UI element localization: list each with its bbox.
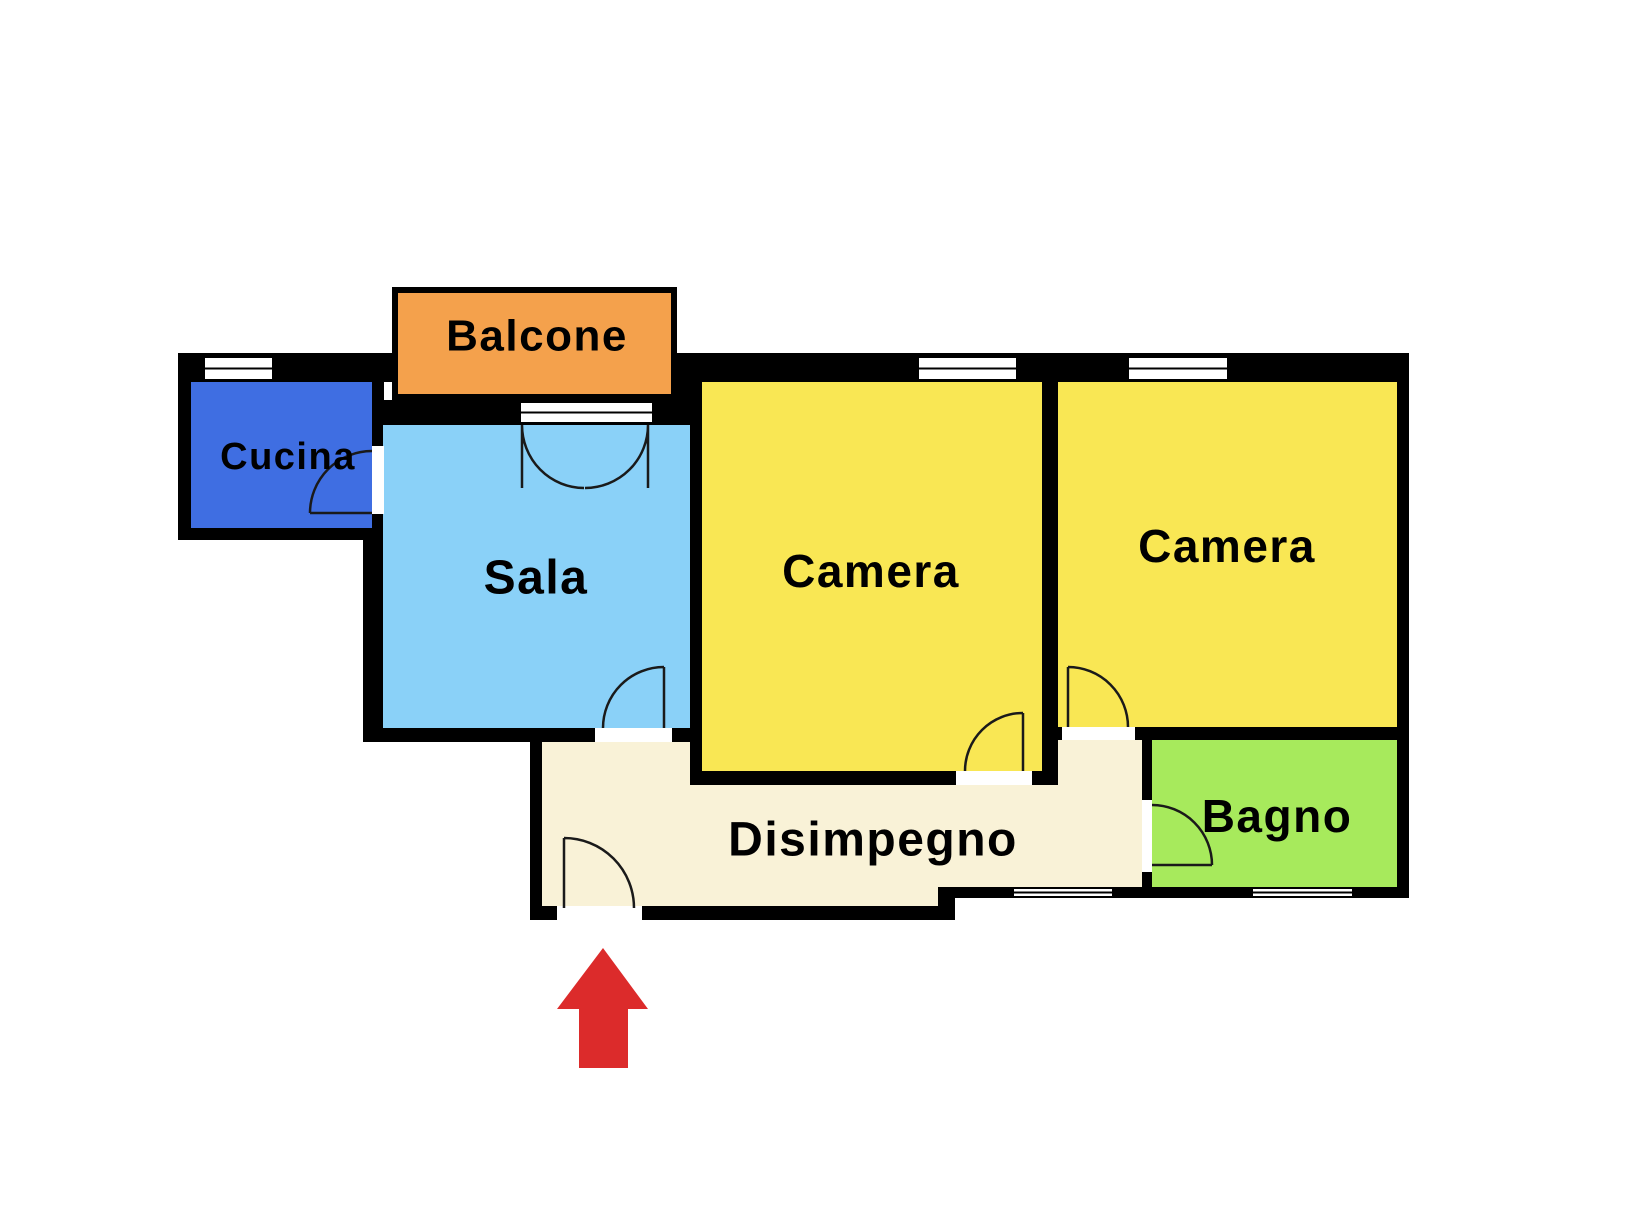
balcone-label: Balcone — [446, 312, 628, 361]
opening-entrance — [557, 906, 642, 920]
camera1-label: Camera — [782, 545, 960, 597]
window-camera1 — [918, 357, 1017, 380]
opening-cucina — [372, 446, 384, 514]
wall-cucina-left — [178, 353, 191, 540]
opening-sala — [595, 728, 672, 742]
opening-camera2 — [1062, 727, 1135, 740]
opening-bagno — [1142, 800, 1152, 872]
wall-camera1-camera2 — [1042, 353, 1058, 785]
wall-right — [1397, 353, 1409, 898]
cucina-label: Cucina — [220, 436, 356, 478]
wall-cucina-bottom — [178, 528, 384, 540]
disimpegno-label: Disimpegno — [728, 814, 1018, 867]
window-disimpegno-south — [1013, 888, 1113, 897]
window-cucina — [204, 357, 273, 380]
sala-label: Sala — [484, 552, 589, 605]
floor-plan: Balcone Cucina Sala Camera Camera Bagno … — [0, 0, 1631, 1209]
bagno-label: Bagno — [1202, 790, 1353, 842]
wall-sala-camera1 — [690, 353, 702, 785]
window-camera2 — [1128, 357, 1228, 380]
opening-camera1 — [956, 771, 1032, 785]
window-balcony-french-door — [520, 402, 653, 423]
camera2-label: Camera — [1138, 520, 1316, 572]
wall-corridor-left — [530, 740, 542, 920]
floor-plan-drawing: Balcone Cucina Sala Camera Camera Bagno … — [0, 0, 1631, 1209]
wall-sala-left — [363, 528, 383, 742]
window-bagno-south — [1252, 888, 1353, 897]
